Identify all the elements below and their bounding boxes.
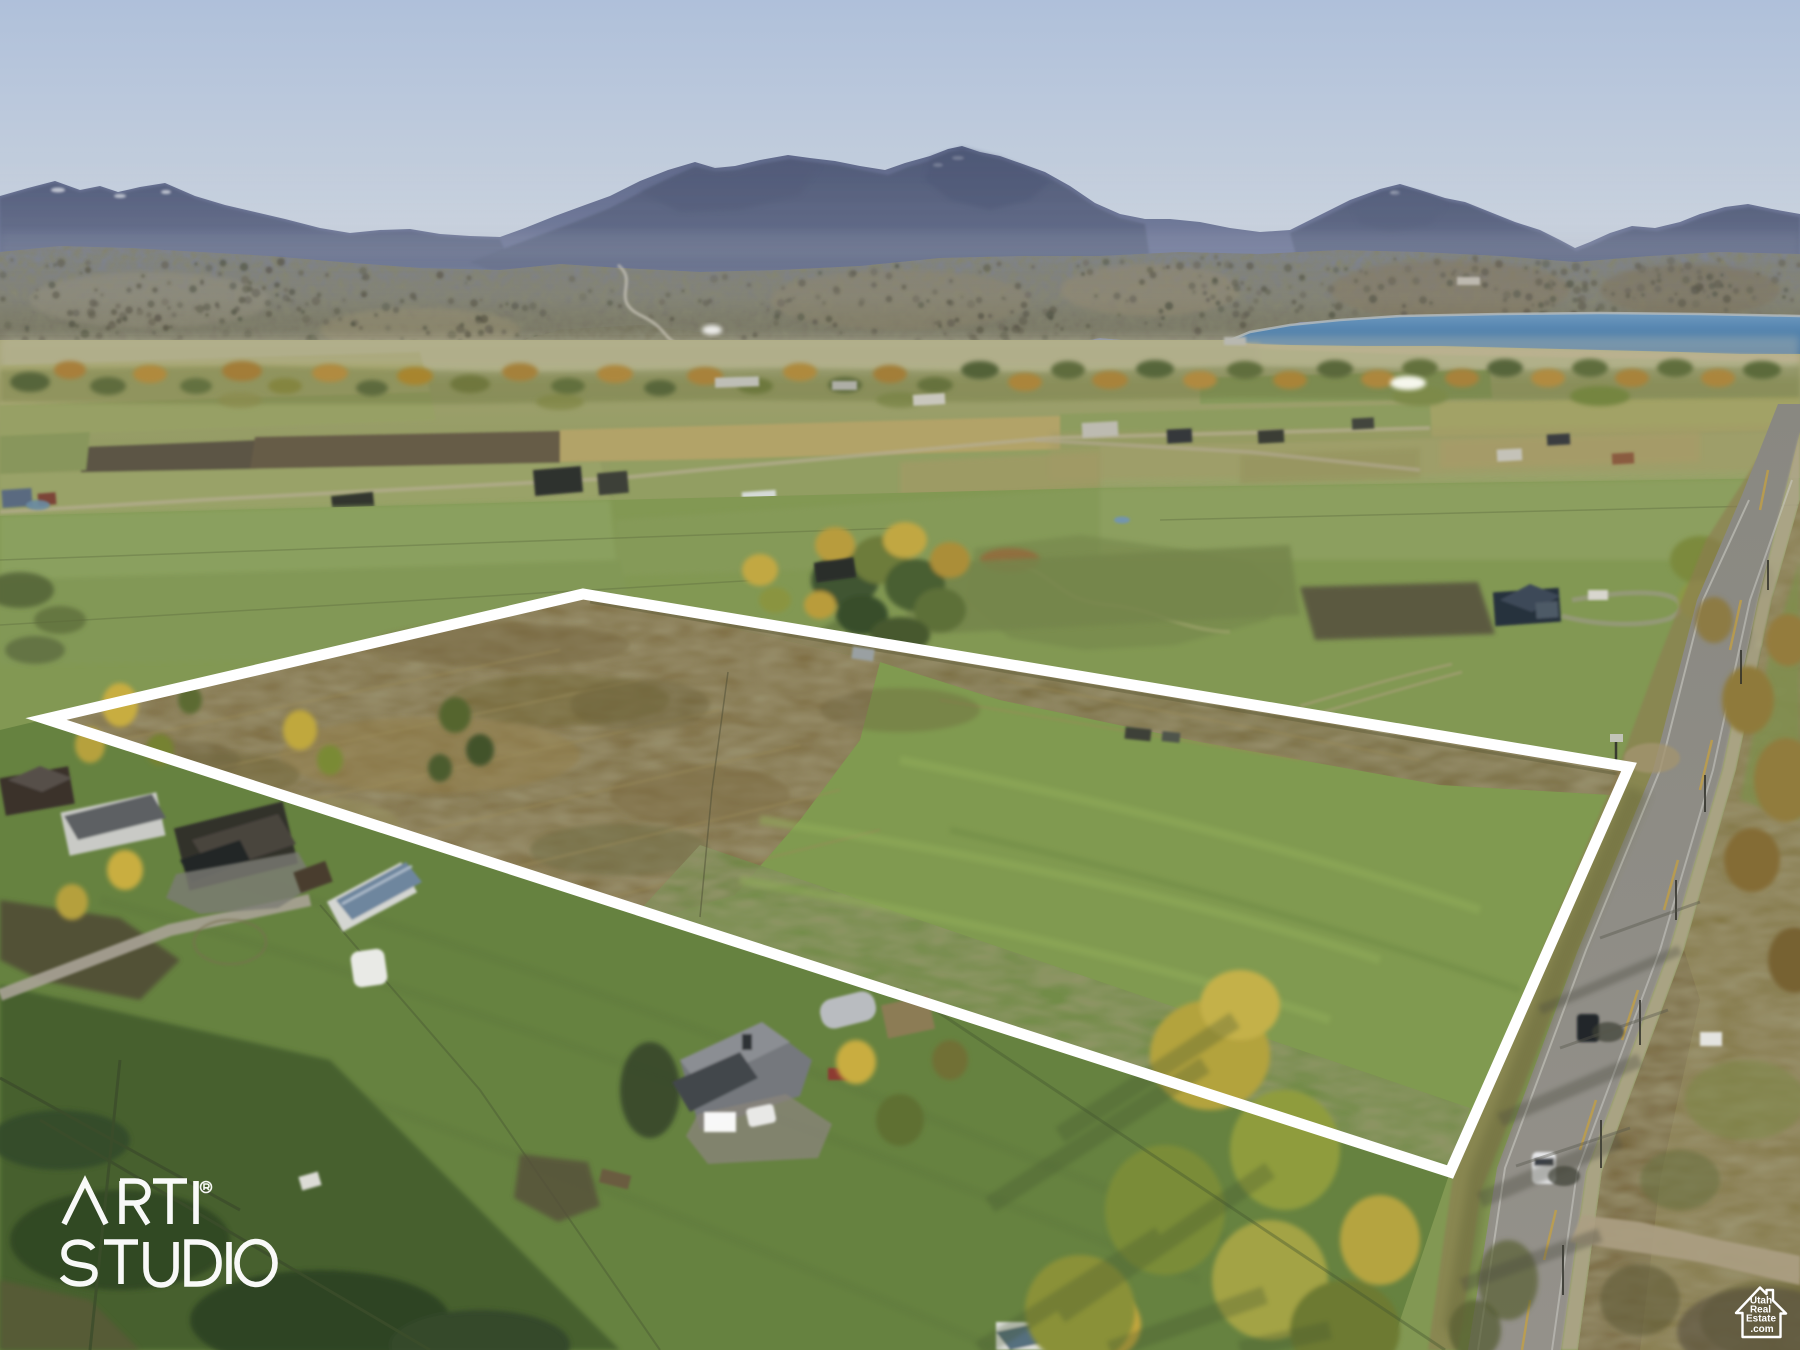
svg-text:.com: .com <box>1750 1324 1773 1335</box>
svg-text:Estate: Estate <box>1746 1314 1776 1325</box>
